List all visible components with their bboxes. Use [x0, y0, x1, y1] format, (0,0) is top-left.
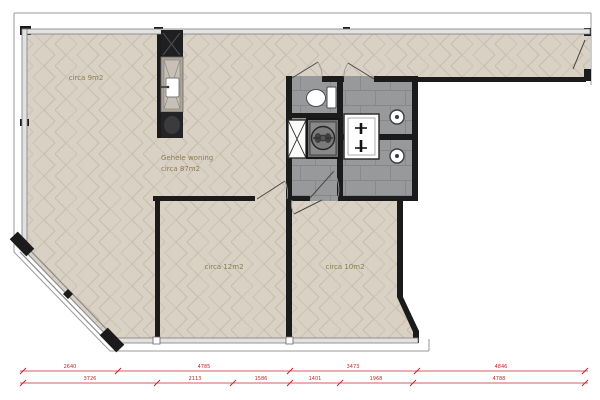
shower-head-icon [390, 110, 404, 124]
dimension-labels-lower: 3726 2113 1586 1401 1968 4788 [84, 376, 506, 382]
dimension-label: 2640 [64, 364, 77, 370]
dimension-label: 1586 [255, 376, 268, 382]
room-label-bedroom-right: circa 10m2 [325, 263, 364, 271]
room-label-top-left: circa 9m2 [69, 74, 104, 82]
washing-machine-fixture [307, 119, 339, 158]
dimension-label: 1401 [309, 376, 322, 382]
cupboard-fixture [288, 120, 306, 158]
dimension-label: 4846 [495, 364, 508, 370]
dimension-label: 2113 [189, 376, 202, 382]
dimension-label: 3473 [347, 364, 360, 370]
shower-head-icon [390, 149, 404, 163]
room-label-whole-home-line2: circa 87m2 [161, 165, 200, 173]
floor-plan-page: circa 9m2 Gehele woning circa 87m2 circa… [0, 0, 600, 400]
dimension-label: 1968 [370, 376, 383, 382]
room-label-whole-home-line1: Gehele woning [161, 154, 213, 162]
room-label-bedroom-left: circa 12m2 [204, 263, 243, 271]
dimension-labels-upper: 2640 4785 3473 4846 [64, 364, 508, 370]
kitchen-unit [161, 30, 183, 138]
dimension-label: 4788 [493, 376, 506, 382]
dimension-label: 3726 [84, 376, 97, 382]
dimension-label: 4785 [198, 364, 211, 370]
washbasin-fixture [344, 114, 379, 159]
floor-plan-canvas: circa 9m2 Gehele woning circa 87m2 circa… [0, 0, 600, 400]
